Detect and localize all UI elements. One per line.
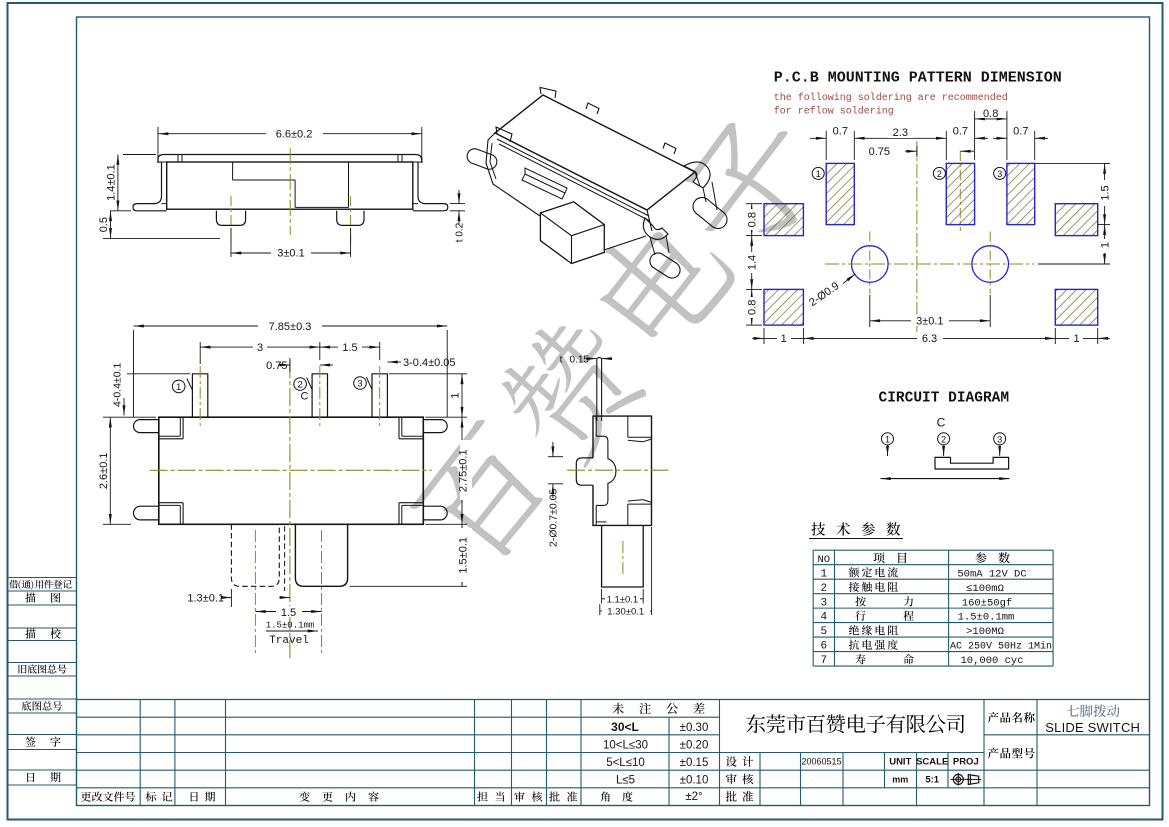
svg-text:0.8: 0.8 — [746, 300, 758, 315]
svg-text:1.3±0.1: 1.3±0.1 — [187, 593, 224, 605]
svg-text:1.5: 1.5 — [342, 342, 357, 354]
svg-text:C: C — [937, 416, 946, 430]
svg-text:mm: mm — [892, 775, 908, 785]
svg-text:the following soldering are re: the following soldering are recommended — [774, 92, 1008, 104]
svg-text:2: 2 — [297, 380, 302, 391]
svg-text:2: 2 — [941, 434, 946, 444]
svg-text:3: 3 — [820, 597, 827, 609]
svg-text:1.5±0.1mm: 1.5±0.1mm — [266, 621, 315, 631]
svg-text:SCALE: SCALE — [916, 757, 948, 768]
svg-text:±0.15: ±0.15 — [680, 757, 709, 769]
svg-text:3: 3 — [357, 379, 362, 390]
svg-text:NO: NO — [817, 554, 830, 566]
svg-text:L≤5: L≤5 — [616, 774, 635, 786]
svg-text:±0.20: ±0.20 — [680, 739, 709, 751]
svg-text:1: 1 — [1073, 333, 1079, 345]
svg-text:≤100mΩ: ≤100mΩ — [966, 583, 1004, 595]
svg-text:0.75: 0.75 — [869, 146, 890, 158]
svg-text:7: 7 — [820, 655, 827, 667]
svg-text:0.7: 0.7 — [833, 126, 848, 138]
svg-text:1: 1 — [450, 392, 462, 398]
svg-text:3±0.1: 3±0.1 — [277, 248, 304, 260]
svg-text:2.75±0.1: 2.75±0.1 — [457, 449, 469, 492]
svg-text:1: 1 — [1100, 242, 1112, 248]
svg-text:4-0.4±0.1: 4-0.4±0.1 — [112, 363, 124, 407]
svg-text:4: 4 — [820, 612, 827, 624]
svg-text:3: 3 — [997, 434, 1002, 444]
svg-text:6.3: 6.3 — [922, 333, 937, 345]
svg-text:5: 5 — [820, 626, 827, 638]
svg-text:1: 1 — [176, 382, 181, 393]
svg-text:10<L≤30: 10<L≤30 — [603, 739, 648, 751]
svg-text:30<L: 30<L — [611, 720, 639, 734]
svg-text:CIRCUIT DIAGRAM: CIRCUIT DIAGRAM — [879, 391, 1010, 407]
svg-text:2-Ø0.7±0.05: 2-Ø0.7±0.05 — [548, 489, 560, 547]
svg-text:6: 6 — [820, 641, 827, 653]
svg-text:1.4: 1.4 — [746, 255, 758, 270]
svg-text:t 0.2: t 0.2 — [455, 222, 466, 242]
svg-text:for reflow soldering: for reflow soldering — [774, 106, 894, 118]
svg-text:1.1±0.1: 1.1±0.1 — [607, 594, 639, 605]
svg-text:5:1: 5:1 — [925, 775, 939, 786]
svg-text:3±0.1: 3±0.1 — [916, 315, 943, 327]
svg-text:1.5±0.1mm: 1.5±0.1mm — [958, 612, 1015, 624]
svg-text:1: 1 — [781, 333, 787, 345]
svg-text:1.5±0.1: 1.5±0.1 — [457, 537, 469, 574]
svg-text:t: t — [560, 354, 563, 365]
svg-text:0.15: 0.15 — [570, 354, 590, 365]
svg-text:0.8: 0.8 — [983, 108, 998, 120]
svg-text:1.5: 1.5 — [281, 607, 296, 619]
svg-text:50mA 12V DC: 50mA 12V DC — [957, 568, 1026, 580]
svg-text:0.8: 0.8 — [746, 212, 758, 227]
svg-text:3-0.4±0.05: 3-0.4±0.05 — [403, 357, 456, 369]
svg-text:Travel: Travel — [269, 635, 309, 647]
svg-text:±2°: ±2° — [685, 791, 702, 803]
svg-text:SLIDE SWITCH: SLIDE SWITCH — [1045, 720, 1140, 735]
svg-text:0.75: 0.75 — [266, 360, 287, 372]
svg-text:1: 1 — [820, 568, 827, 580]
svg-text:6.6±0.2: 6.6±0.2 — [276, 129, 313, 141]
svg-text:2.3: 2.3 — [893, 127, 908, 139]
svg-text:>100MΩ: >100MΩ — [966, 626, 1004, 638]
svg-text:AC 250V 50Hz 1Min: AC 250V 50Hz 1Min — [950, 641, 1052, 653]
svg-text:1: 1 — [816, 169, 821, 179]
svg-text:C: C — [301, 391, 309, 403]
svg-text:2: 2 — [820, 583, 827, 595]
svg-text:0.5: 0.5 — [98, 217, 110, 232]
svg-text:2: 2 — [937, 169, 942, 179]
svg-text:7.85±0.3: 7.85±0.3 — [269, 321, 312, 333]
svg-text:3: 3 — [997, 169, 1002, 179]
svg-text:160±50gf: 160±50gf — [962, 597, 1012, 609]
svg-text:±0.30: ±0.30 — [680, 722, 709, 734]
svg-text:20060515: 20060515 — [801, 756, 841, 766]
svg-text:1.4±0.1: 1.4±0.1 — [106, 164, 118, 201]
svg-text:5<L≤10: 5<L≤10 — [606, 757, 645, 769]
svg-text:0.7: 0.7 — [1013, 126, 1028, 138]
svg-text:1.5: 1.5 — [1100, 185, 1112, 200]
svg-text:3: 3 — [257, 342, 263, 354]
svg-text:10,000 cyc: 10,000 cyc — [960, 655, 1023, 667]
svg-text:UNIT: UNIT — [889, 757, 911, 768]
svg-text:±0.10: ±0.10 — [680, 774, 709, 786]
svg-text:PROJ: PROJ — [953, 757, 979, 768]
svg-text:1: 1 — [885, 434, 890, 444]
svg-text:2.6±0.1: 2.6±0.1 — [98, 452, 110, 489]
svg-text:0.7: 0.7 — [953, 126, 968, 138]
svg-text:P.C.B MOUNTING PATTERN DIMENSI: P.C.B MOUNTING PATTERN DIMENSION — [774, 70, 1062, 87]
svg-text:1.30±0.1: 1.30±0.1 — [607, 606, 644, 617]
